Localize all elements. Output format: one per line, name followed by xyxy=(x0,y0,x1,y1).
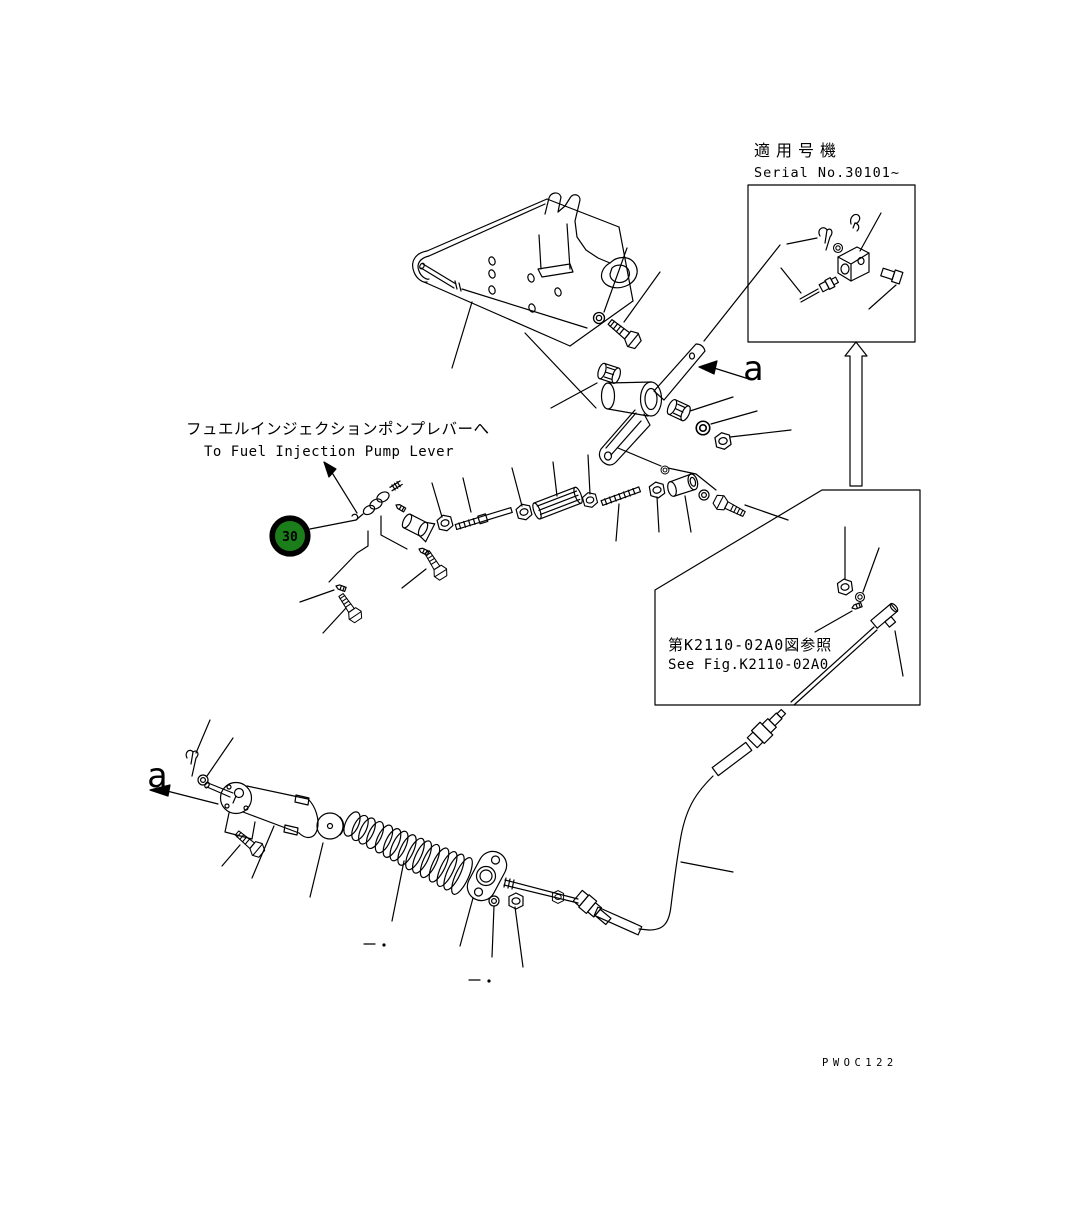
damper-cylinder xyxy=(221,783,319,840)
serial-applicability-section xyxy=(748,185,915,342)
see-fig-ref-en: See Fig.K2110-02A0 xyxy=(668,657,829,673)
linkage-washer-5 xyxy=(699,490,709,500)
serial-title-jp: 適用号機 xyxy=(754,141,842,160)
lever-nut xyxy=(714,431,731,450)
serial-box-washer xyxy=(834,244,843,253)
piston-disc xyxy=(317,813,344,839)
linkage-nut-4 xyxy=(649,481,666,499)
serial-box-cable-rod xyxy=(800,289,819,302)
see-fig-ref-jp: 第K2110-02A0図参照 xyxy=(668,636,832,654)
flange-plate xyxy=(462,846,511,905)
view-a-top-arrow xyxy=(699,361,749,379)
coil-spring xyxy=(341,809,477,896)
bracket-plate-assembly xyxy=(413,193,660,408)
damper-washer xyxy=(198,775,208,785)
truncated-callout-dashes xyxy=(364,944,490,982)
linkage-spacer xyxy=(666,473,700,497)
linkage-pin-2 xyxy=(418,547,429,555)
callout-30-group: 30 フュエルインジェクションポンプレバーへ To Fuel Injection… xyxy=(186,420,490,556)
cable-threaded-rod xyxy=(504,878,578,903)
linkage-bolt-1 xyxy=(335,591,364,624)
reference-up-arrow xyxy=(845,342,867,486)
cable-upper-fitting xyxy=(746,705,790,749)
linkage-parts xyxy=(300,448,788,633)
bracket-washer xyxy=(594,313,605,324)
lever-leader-lines xyxy=(551,245,791,437)
cable-elbow-fitting xyxy=(871,602,904,633)
arm-to-washer-line xyxy=(618,448,661,466)
flange-nut xyxy=(509,893,523,909)
linkage-nut-2 xyxy=(515,502,533,521)
lever-hub xyxy=(602,382,662,416)
cable-leader-line xyxy=(681,862,733,872)
linkage-nut-1 xyxy=(436,513,454,532)
linkage-leader-lines xyxy=(300,455,788,633)
damper-leader-lines xyxy=(196,720,323,897)
control-cable xyxy=(573,627,877,935)
return-spring-hook xyxy=(352,480,403,520)
linkage-washer-small xyxy=(661,466,669,474)
linkage-rod-1 xyxy=(455,506,513,531)
lever-bushing xyxy=(665,398,692,422)
linkage-pin-3 xyxy=(335,584,346,592)
damper-assembly: a xyxy=(147,720,344,897)
serial-box-frame xyxy=(748,185,915,342)
pivot-bushing xyxy=(596,362,622,384)
throttle-lever-assembly: a xyxy=(551,245,791,465)
cable-curve xyxy=(639,776,713,930)
cable-lower-fitting xyxy=(573,890,614,928)
serial-box-connector-block xyxy=(838,247,869,281)
see-fig-washer xyxy=(856,593,865,602)
linkage-bolt-2 xyxy=(421,548,449,582)
damper-cotter-pin xyxy=(186,750,198,776)
serial-box-cotter-pin-left xyxy=(819,228,832,250)
note-fuel-pump-en: To Fuel Injection Pump Lever xyxy=(204,444,454,460)
serial-box-clevis-pin xyxy=(880,266,903,284)
see-fig-nut xyxy=(837,578,853,596)
spring-flange-group xyxy=(341,809,578,982)
callout-30-number[interactable]: 30 xyxy=(282,530,298,545)
bracket-pin xyxy=(419,262,461,291)
flange-washer xyxy=(489,896,499,906)
drawing-code: PWOC122 xyxy=(822,1057,898,1069)
linkage-rod-2 xyxy=(601,487,641,506)
fork-bracket xyxy=(538,193,637,288)
lever-strap xyxy=(654,344,705,400)
note-fuel-pump-jp: フュエルインジェクションポンプレバーへ xyxy=(186,420,490,438)
linkage-bolt-3 xyxy=(711,493,747,521)
serial-box-cotter-pin-top xyxy=(851,214,860,231)
lever-arm xyxy=(599,410,650,465)
serial-title-en: Serial No.30101~ xyxy=(754,165,900,181)
lever-washer xyxy=(696,421,710,435)
spline-sleeve xyxy=(531,486,584,520)
note-arrow xyxy=(324,462,357,513)
cable-upper-sleeve xyxy=(712,742,752,775)
linkage-pin-1 xyxy=(395,503,406,512)
bracket-bolt xyxy=(605,315,644,351)
view-a-top-label: a xyxy=(743,349,763,389)
see-fig-screw xyxy=(851,603,862,611)
serial-box-cable-end xyxy=(819,275,840,292)
spring-flange-leaders xyxy=(392,861,523,967)
parts-diagram-page: a xyxy=(0,0,1071,1218)
linkage-clevis xyxy=(399,511,434,542)
callout-30-leader xyxy=(310,520,356,529)
